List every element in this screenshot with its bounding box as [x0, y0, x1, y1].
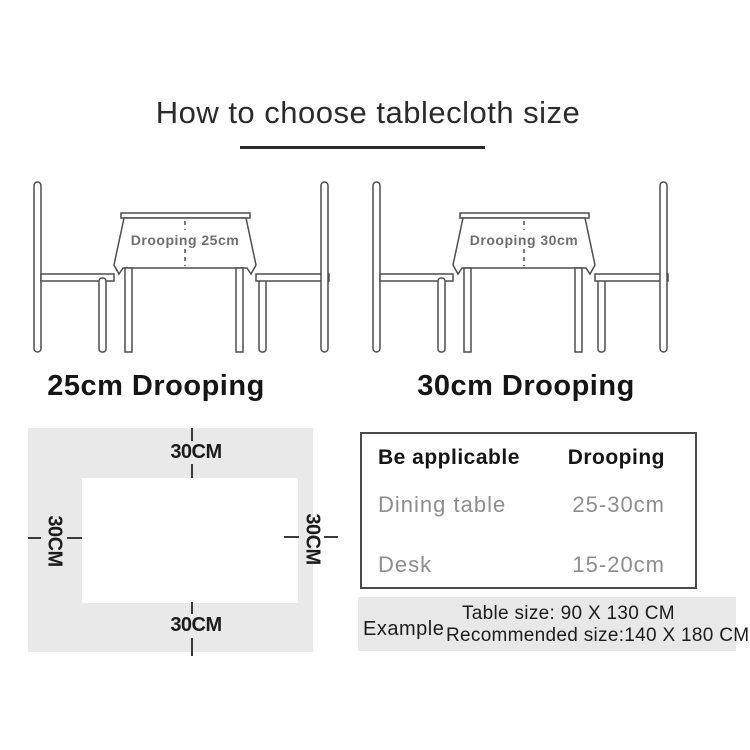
- example-label: Example: [363, 618, 444, 641]
- tablecloth-size-guide: How to choose tablecloth size: [0, 0, 750, 750]
- drooping-spec-table: Be applicable Drooping Dining table 25-3…: [360, 432, 697, 589]
- table-chairs-drawing: [34, 182, 329, 352]
- example-box: Example Table size: 90 X 130 CM Recommen…: [358, 597, 736, 651]
- title-underline: [240, 146, 485, 149]
- table-illustration-25cm: Drooping 25cm: [25, 170, 365, 355]
- spec-item-value: 25-30cm: [572, 492, 665, 518]
- dimension-tick-bottom-outer: [191, 638, 193, 656]
- dimension-tick-left-inner: [67, 537, 82, 539]
- dimension-label-top: 30CM: [160, 441, 232, 464]
- table-illustration-30cm: Drooping 30cm: [364, 170, 704, 355]
- cloth-drop-label-30cm: Drooping 30cm: [470, 232, 578, 248]
- page-title: How to choose tablecloth size: [0, 95, 736, 131]
- dimension-label-bottom: 30CM: [160, 614, 232, 637]
- spec-row-desk: Desk 15-20cm: [378, 552, 665, 578]
- example-table-size: Table size: 90 X 130 CM: [462, 603, 675, 625]
- example-recommended-size: Recommended size:140 X 180 CM: [446, 625, 749, 647]
- spec-row-dining-table: Dining table 25-30cm: [378, 492, 665, 518]
- table-chairs-drawing: [373, 182, 668, 352]
- tabletop-area: [82, 478, 298, 603]
- spec-item-label: Desk: [378, 552, 432, 578]
- caption-30cm-drooping: 30cm Drooping: [366, 370, 686, 403]
- dimension-label-left: 30CM: [43, 515, 66, 566]
- spec-table-header-row: Be applicable Drooping: [378, 446, 665, 470]
- dimension-tick-top-outer: [191, 428, 193, 441]
- dimension-tick-right-inner: [284, 536, 299, 538]
- spec-header-drooping: Drooping: [568, 446, 665, 470]
- cloth-drop-label-25cm: Drooping 25cm: [131, 232, 239, 248]
- dimension-label-right: 30CM: [301, 513, 324, 564]
- dimension-tick-bottom-inner: [191, 602, 193, 614]
- spec-header-applicable: Be applicable: [378, 446, 520, 470]
- dimension-tick-left-outer: [28, 537, 41, 539]
- caption-25cm-drooping: 25cm Drooping: [0, 370, 312, 403]
- dimension-tick-top-inner: [191, 464, 193, 478]
- dimension-tick-right-outer: [324, 536, 338, 538]
- spec-item-value: 15-20cm: [572, 552, 665, 578]
- spec-item-label: Dining table: [378, 492, 506, 518]
